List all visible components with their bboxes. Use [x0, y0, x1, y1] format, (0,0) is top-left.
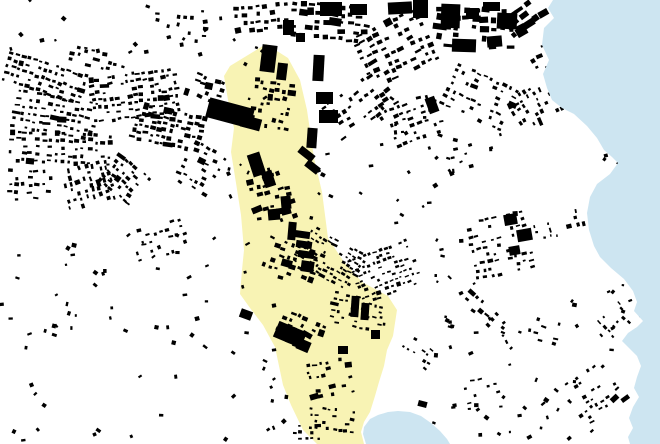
building: [434, 353, 438, 358]
building: [183, 16, 187, 20]
building: [177, 108, 180, 111]
landmark-building: [276, 62, 288, 80]
landmark-building: [268, 208, 281, 220]
building: [543, 236, 546, 238]
landmark-building: [280, 196, 291, 210]
building: [380, 316, 383, 319]
building: [556, 234, 558, 237]
building: [8, 168, 13, 172]
building: [125, 116, 130, 118]
building: [287, 90, 296, 97]
building: [131, 71, 134, 74]
building: [24, 346, 27, 350]
landmark-building: [508, 245, 520, 256]
building: [149, 105, 153, 108]
building: [346, 39, 352, 42]
building: [517, 414, 522, 418]
building: [310, 437, 313, 439]
building: [315, 414, 319, 416]
landmark-building: [388, 1, 413, 14]
building: [203, 19, 208, 24]
building: [22, 132, 27, 134]
building: [136, 137, 141, 141]
building: [139, 92, 144, 96]
building: [109, 97, 114, 102]
building: [196, 115, 202, 119]
building: [98, 105, 102, 109]
building: [312, 364, 317, 366]
building: [486, 252, 489, 256]
building: [380, 143, 384, 146]
building: [335, 408, 337, 411]
landmark-building: [441, 4, 461, 29]
building: [70, 326, 72, 330]
building: [8, 317, 12, 319]
building: [309, 426, 312, 429]
building: [345, 362, 353, 368]
building: [291, 9, 296, 12]
building: [102, 52, 108, 57]
building: [202, 35, 206, 37]
building: [62, 105, 65, 107]
building: [272, 303, 277, 308]
building: [509, 431, 511, 433]
building: [65, 264, 68, 267]
building: [175, 251, 179, 254]
building: [330, 37, 336, 40]
building: [354, 39, 359, 44]
building: [75, 148, 78, 150]
building: [93, 106, 96, 109]
building: [337, 29, 345, 34]
building: [166, 74, 169, 77]
building: [343, 429, 347, 432]
building: [46, 190, 51, 193]
building: [406, 111, 408, 114]
building: [427, 201, 432, 204]
building: [474, 331, 479, 334]
building: [322, 421, 326, 424]
map-viewport: [0, 0, 660, 444]
building: [20, 118, 23, 122]
landmark-building: [312, 55, 324, 82]
building: [264, 20, 269, 24]
building: [337, 310, 340, 313]
building: [162, 90, 167, 93]
building: [9, 183, 12, 185]
building: [116, 110, 121, 112]
building: [190, 16, 194, 20]
building: [21, 158, 24, 161]
building: [95, 90, 100, 94]
building: [306, 364, 310, 368]
building: [267, 94, 273, 101]
building: [48, 146, 52, 148]
building: [95, 142, 98, 145]
building: [97, 186, 101, 190]
building: [9, 150, 12, 153]
building: [528, 328, 531, 332]
building: [89, 77, 94, 83]
building: [353, 411, 355, 413]
building: [479, 219, 484, 222]
building: [356, 16, 363, 19]
building: [67, 160, 70, 163]
landmark-building: [516, 228, 533, 242]
building: [345, 300, 348, 302]
building: [453, 33, 459, 38]
building: [314, 34, 319, 38]
building: [166, 136, 171, 141]
city-figure-ground-map: [0, 0, 660, 444]
landmark-building: [371, 330, 380, 339]
building: [150, 85, 154, 88]
building: [39, 121, 43, 124]
building: [394, 221, 398, 224]
building: [260, 80, 263, 84]
building: [139, 118, 144, 122]
landmark-building: [296, 33, 305, 42]
building: [37, 92, 42, 95]
building: [107, 111, 110, 113]
building: [101, 155, 105, 157]
building: [60, 138, 65, 142]
building: [301, 1, 307, 6]
building: [115, 97, 120, 101]
building: [17, 254, 21, 257]
building: [314, 25, 319, 30]
building: [452, 403, 457, 407]
building: [369, 164, 374, 167]
building: [258, 108, 262, 112]
landmark-building: [300, 260, 314, 273]
building: [88, 147, 93, 150]
building: [383, 323, 386, 326]
building: [103, 98, 106, 102]
building: [572, 303, 577, 308]
building: [281, 113, 284, 115]
building: [342, 384, 347, 387]
building: [275, 88, 280, 92]
building: [21, 182, 25, 186]
building: [66, 119, 70, 121]
building: [314, 420, 317, 423]
building: [459, 239, 464, 243]
building: [35, 152, 39, 155]
building: [305, 25, 313, 31]
building: [205, 300, 208, 302]
building: [36, 99, 40, 103]
building: [42, 161, 45, 164]
building: [60, 111, 64, 113]
building: [42, 122, 50, 125]
building: [61, 160, 65, 164]
building: [155, 12, 160, 15]
building: [42, 133, 47, 136]
building: [152, 105, 155, 107]
building: [80, 154, 83, 158]
building: [188, 31, 191, 35]
building: [476, 270, 480, 274]
building: [81, 161, 86, 164]
building: [129, 108, 133, 110]
building: [622, 284, 625, 286]
building: [184, 113, 187, 116]
building: [139, 99, 143, 103]
building: [394, 130, 397, 134]
building: [315, 20, 320, 24]
building: [338, 429, 342, 432]
landmark-building: [320, 2, 342, 16]
building: [154, 325, 159, 330]
building: [88, 137, 93, 141]
landmark-building: [350, 296, 359, 318]
building: [361, 29, 368, 34]
building: [350, 431, 354, 433]
building: [289, 84, 295, 88]
building: [128, 101, 132, 105]
building: [112, 118, 116, 122]
building: [480, 26, 489, 32]
building: [359, 327, 362, 329]
building: [488, 268, 491, 271]
building: [348, 21, 354, 24]
building: [73, 155, 77, 158]
building: [134, 101, 138, 103]
building: [84, 128, 88, 131]
building: [62, 132, 66, 135]
building: [502, 9, 507, 13]
building: [104, 105, 108, 109]
building: [0, 302, 4, 306]
building: [172, 143, 176, 147]
building: [7, 56, 11, 60]
building: [298, 425, 300, 427]
building: [74, 139, 79, 143]
building: [61, 147, 65, 150]
building: [264, 27, 268, 30]
landmark-building: [452, 39, 476, 53]
building: [323, 35, 328, 40]
building: [194, 39, 197, 43]
building: [472, 25, 477, 29]
building: [103, 269, 107, 273]
building: [16, 159, 20, 163]
building: [305, 437, 308, 440]
building: [484, 269, 487, 273]
building: [331, 392, 335, 396]
building: [15, 198, 18, 200]
building: [298, 438, 302, 440]
building: [132, 127, 136, 132]
building: [106, 164, 109, 166]
building: [199, 130, 204, 133]
building: [310, 414, 312, 416]
building: [270, 81, 276, 84]
building: [242, 13, 248, 17]
building: [179, 42, 183, 47]
building: [166, 325, 169, 329]
building: [46, 115, 50, 117]
building: [244, 331, 249, 334]
building: [142, 131, 148, 134]
building: [275, 195, 280, 199]
building: [257, 29, 263, 33]
building: [112, 104, 115, 106]
building: [35, 137, 40, 141]
building: [82, 140, 86, 143]
building: [547, 222, 549, 225]
building: [233, 7, 239, 11]
building: [26, 158, 35, 165]
building: [27, 151, 32, 154]
building: [147, 98, 150, 100]
building: [250, 21, 254, 24]
building: [483, 246, 488, 249]
building: [282, 90, 286, 95]
landmark-building: [350, 4, 367, 15]
landmark-building: [319, 110, 338, 123]
building: [12, 116, 16, 119]
building: [269, 10, 275, 15]
building: [479, 17, 488, 24]
landmark-building: [306, 128, 317, 149]
building: [70, 127, 74, 130]
building: [68, 156, 72, 158]
building: [28, 176, 33, 179]
building: [298, 430, 302, 434]
building: [34, 160, 38, 162]
building: [14, 182, 19, 186]
building: [307, 7, 314, 15]
building: [535, 231, 538, 233]
building: [87, 171, 91, 174]
building: [108, 140, 113, 145]
building: [14, 190, 18, 194]
building: [10, 130, 15, 136]
building: [18, 131, 22, 133]
building: [153, 97, 157, 101]
building: [573, 380, 576, 383]
building: [249, 28, 255, 33]
building: [345, 423, 350, 425]
building: [34, 183, 40, 187]
building: [49, 139, 52, 142]
building: [491, 17, 496, 23]
building: [176, 124, 179, 127]
building: [474, 403, 478, 407]
building: [476, 276, 479, 279]
building: [61, 153, 65, 155]
building: [293, 432, 297, 434]
building: [489, 148, 492, 152]
building: [55, 159, 58, 162]
building: [365, 327, 369, 331]
building: [164, 102, 167, 105]
building: [159, 414, 163, 417]
building: [277, 25, 282, 29]
building: [482, 36, 487, 42]
building: [142, 112, 147, 117]
building: [10, 124, 15, 127]
building: [255, 77, 260, 81]
building: [275, 2, 280, 7]
building: [278, 127, 281, 130]
building: [257, 12, 260, 16]
building: [201, 10, 204, 13]
building: [108, 157, 110, 159]
building: [154, 70, 158, 73]
building: [266, 102, 270, 105]
building: [338, 358, 341, 362]
building: [174, 375, 177, 379]
building: [113, 63, 117, 66]
building: [22, 137, 26, 140]
building: [326, 427, 329, 430]
building: [309, 3, 315, 6]
building: [55, 130, 60, 136]
building: [436, 33, 442, 40]
building: [284, 2, 288, 6]
building: [57, 116, 67, 122]
landmark-building: [413, 0, 428, 18]
building: [15, 177, 18, 181]
building: [177, 15, 181, 19]
building: [219, 16, 222, 20]
landmark-building: [360, 303, 369, 321]
building: [317, 438, 320, 440]
building: [83, 133, 86, 136]
building: [434, 274, 437, 277]
building: [314, 424, 321, 427]
building: [110, 306, 113, 309]
building: [158, 95, 164, 101]
building: [149, 139, 152, 142]
building: [609, 349, 614, 352]
landmark-building: [503, 213, 518, 226]
building: [161, 69, 164, 72]
building: [338, 36, 342, 40]
building: [469, 243, 474, 246]
landmark-building: [483, 2, 500, 11]
building: [95, 149, 98, 151]
building: [56, 139, 60, 143]
building: [487, 385, 490, 388]
building: [264, 124, 267, 128]
building: [507, 45, 515, 48]
building: [491, 28, 496, 32]
building: [234, 14, 237, 18]
building: [374, 304, 377, 307]
building: [448, 320, 452, 323]
building: [75, 314, 77, 317]
building: [42, 183, 45, 185]
building: [493, 383, 496, 385]
building: [488, 225, 491, 228]
building: [478, 433, 482, 437]
building: [55, 153, 58, 156]
building: [98, 98, 102, 100]
building: [47, 159, 51, 161]
building: [257, 217, 262, 220]
building: [9, 139, 14, 141]
building: [73, 162, 77, 166]
building: [93, 133, 98, 137]
building: [22, 106, 25, 109]
building: [57, 124, 62, 127]
landmark-building: [497, 12, 518, 29]
building: [244, 21, 248, 25]
